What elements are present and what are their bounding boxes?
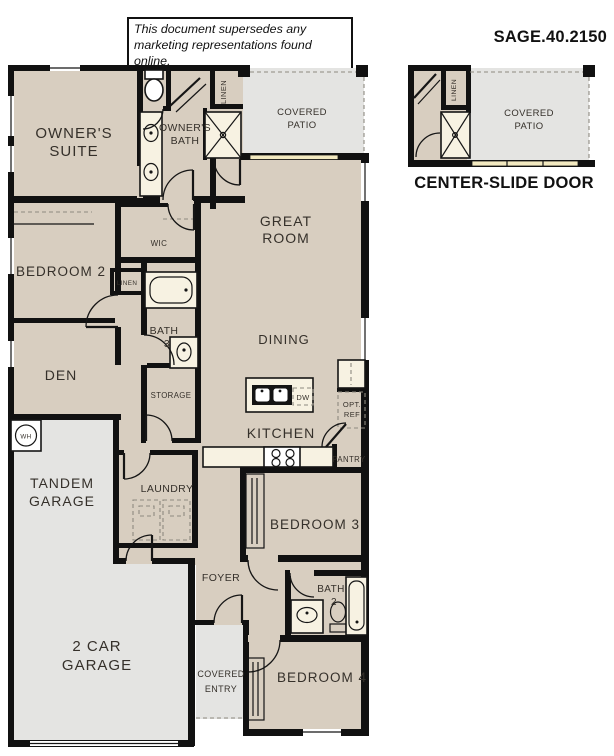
- label-inset-covered-patio2: PATIO: [514, 121, 543, 132]
- label-owners-suite2: SUITE: [49, 143, 98, 160]
- label-covered-entry2: ENTRY: [205, 684, 237, 694]
- label-owners-suite: OWNER'S: [35, 125, 112, 142]
- label-dw: DW: [296, 393, 310, 402]
- label-covered-patio: COVERED: [277, 107, 327, 118]
- bathtub-icon: [145, 272, 197, 308]
- label-inset-covered-patio: COVERED: [504, 108, 554, 119]
- patio-slider-door: [250, 155, 338, 160]
- option-inset: LINEN COVERED PATIO: [408, 65, 595, 167]
- label-den: DEN: [45, 367, 78, 383]
- label-linen-owner: LINEN: [219, 80, 228, 104]
- label-2car-garage2: GARAGE: [62, 657, 132, 674]
- label-pantry: PANTRY: [332, 455, 366, 464]
- label-opt-ref2: REF: [344, 410, 360, 419]
- label-owners-bath: OWNER'S: [159, 122, 211, 134]
- label-covered-patio2: PATIO: [287, 120, 316, 131]
- label-bath2-num: 2: [331, 597, 337, 608]
- kitchen-counter: [203, 447, 333, 467]
- label-2car-garage: 2 CAR: [72, 638, 121, 655]
- label-covered-entry: COVERED: [197, 669, 244, 679]
- label-bedroom2: BEDROOM 2: [16, 264, 106, 279]
- label-tandem-garage2: GARAGE: [29, 493, 95, 509]
- label-wic: WIC: [151, 239, 168, 248]
- label-linen2: LINEN: [117, 280, 138, 287]
- label-tandem-garage: TANDEM: [30, 475, 94, 491]
- shower-icon: [441, 112, 470, 158]
- label-dining: DINING: [258, 332, 310, 347]
- label-kitchen: KITCHEN: [247, 425, 315, 441]
- floorplan-page: This document supersedes any marketing r…: [0, 0, 614, 756]
- label-storage: STORAGE: [151, 391, 192, 400]
- floorplan-drawing: OWNER'S SUITE OWNER'S BATH LINEN COVERED…: [0, 0, 614, 756]
- label-inset-linen: LINEN: [451, 79, 458, 101]
- cooktop-icon: [264, 447, 300, 467]
- label-great-room: GREAT: [260, 213, 312, 229]
- shower-icon: [205, 112, 241, 158]
- label-opt-ref: OPT.: [343, 400, 361, 409]
- label-bedroom3: BEDROOM 3: [270, 517, 360, 532]
- label-bath2: BATH: [317, 584, 345, 595]
- toilet-icon: [145, 70, 163, 101]
- label-bath3: BATH: [150, 325, 179, 337]
- label-great-room2: ROOM: [262, 230, 310, 246]
- label-bath3-num: 3: [164, 338, 170, 350]
- bathtub-icon: [346, 577, 367, 635]
- label-laundry: LAUNDRY: [141, 483, 194, 495]
- label-wh: WH: [20, 434, 31, 441]
- sink-icon: [291, 600, 323, 633]
- label-owners-bath2: BATH: [171, 135, 200, 147]
- center-slide-door-band: [472, 161, 578, 166]
- label-foyer: FOYER: [202, 572, 240, 584]
- label-bedroom4: BEDROOM 4: [277, 670, 367, 685]
